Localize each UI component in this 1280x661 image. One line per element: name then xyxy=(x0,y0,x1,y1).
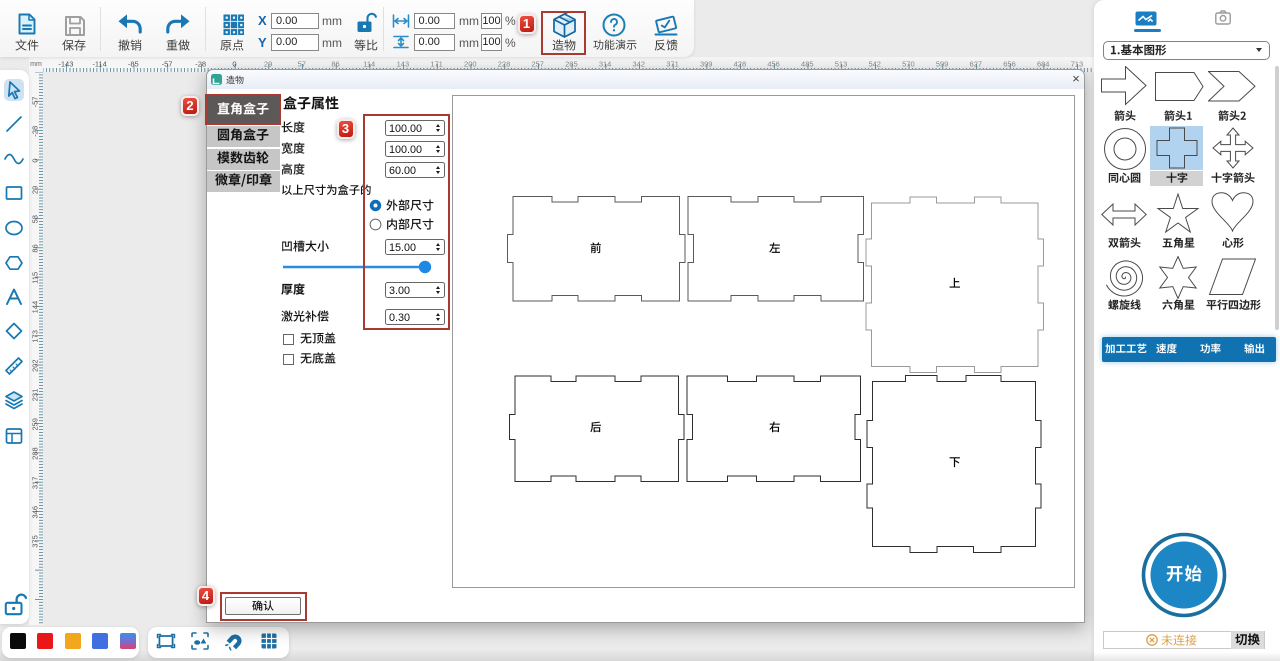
svg-text:86: 86 xyxy=(331,60,339,69)
svg-text:342: 342 xyxy=(633,60,646,69)
svg-text:656: 656 xyxy=(1003,60,1016,69)
svg-text:0: 0 xyxy=(31,159,40,163)
svg-text:570: 570 xyxy=(902,60,915,69)
svg-text:542: 542 xyxy=(868,60,881,69)
svg-text:29: 29 xyxy=(264,60,272,69)
svg-text:317: 317 xyxy=(31,477,40,490)
svg-text:399: 399 xyxy=(700,60,713,69)
svg-text:114: 114 xyxy=(363,60,375,69)
svg-text:627: 627 xyxy=(970,60,983,69)
svg-text:-114: -114 xyxy=(92,60,106,69)
svg-text:-57: -57 xyxy=(162,60,173,69)
svg-text:513: 513 xyxy=(835,60,848,69)
svg-text:0: 0 xyxy=(232,60,236,69)
svg-text:314: 314 xyxy=(599,60,612,69)
svg-text:171: 171 xyxy=(430,60,443,69)
svg-text:143: 143 xyxy=(397,60,410,69)
svg-text:200: 200 xyxy=(464,60,477,69)
svg-text:259: 259 xyxy=(31,418,40,431)
svg-text:202: 202 xyxy=(31,359,40,372)
svg-text:346: 346 xyxy=(31,506,40,519)
svg-text:58: 58 xyxy=(31,215,40,223)
svg-text:375: 375 xyxy=(31,535,40,548)
svg-text:285: 285 xyxy=(565,60,578,69)
svg-text:713: 713 xyxy=(1071,60,1084,69)
svg-text:428: 428 xyxy=(734,60,747,69)
svg-text:144: 144 xyxy=(31,301,40,314)
svg-text:231: 231 xyxy=(31,389,40,402)
svg-text:684: 684 xyxy=(1037,60,1050,69)
svg-text:86: 86 xyxy=(31,244,40,252)
svg-text:257: 257 xyxy=(531,60,544,69)
svg-text:-143: -143 xyxy=(58,60,73,69)
svg-text:115: 115 xyxy=(31,272,40,284)
svg-text:-28: -28 xyxy=(31,126,40,137)
svg-text:57: 57 xyxy=(298,60,306,69)
svg-text:173: 173 xyxy=(31,330,40,343)
svg-text:485: 485 xyxy=(801,60,814,69)
svg-text:288: 288 xyxy=(31,447,40,460)
svg-text:-85: -85 xyxy=(128,60,139,69)
svg-text:228: 228 xyxy=(498,60,511,69)
svg-text:371: 371 xyxy=(666,60,679,69)
svg-text:-28: -28 xyxy=(195,60,206,69)
svg-text:-57: -57 xyxy=(31,97,40,108)
svg-text:456: 456 xyxy=(767,60,780,69)
svg-text:599: 599 xyxy=(936,60,949,69)
svg-text:29: 29 xyxy=(31,186,40,194)
